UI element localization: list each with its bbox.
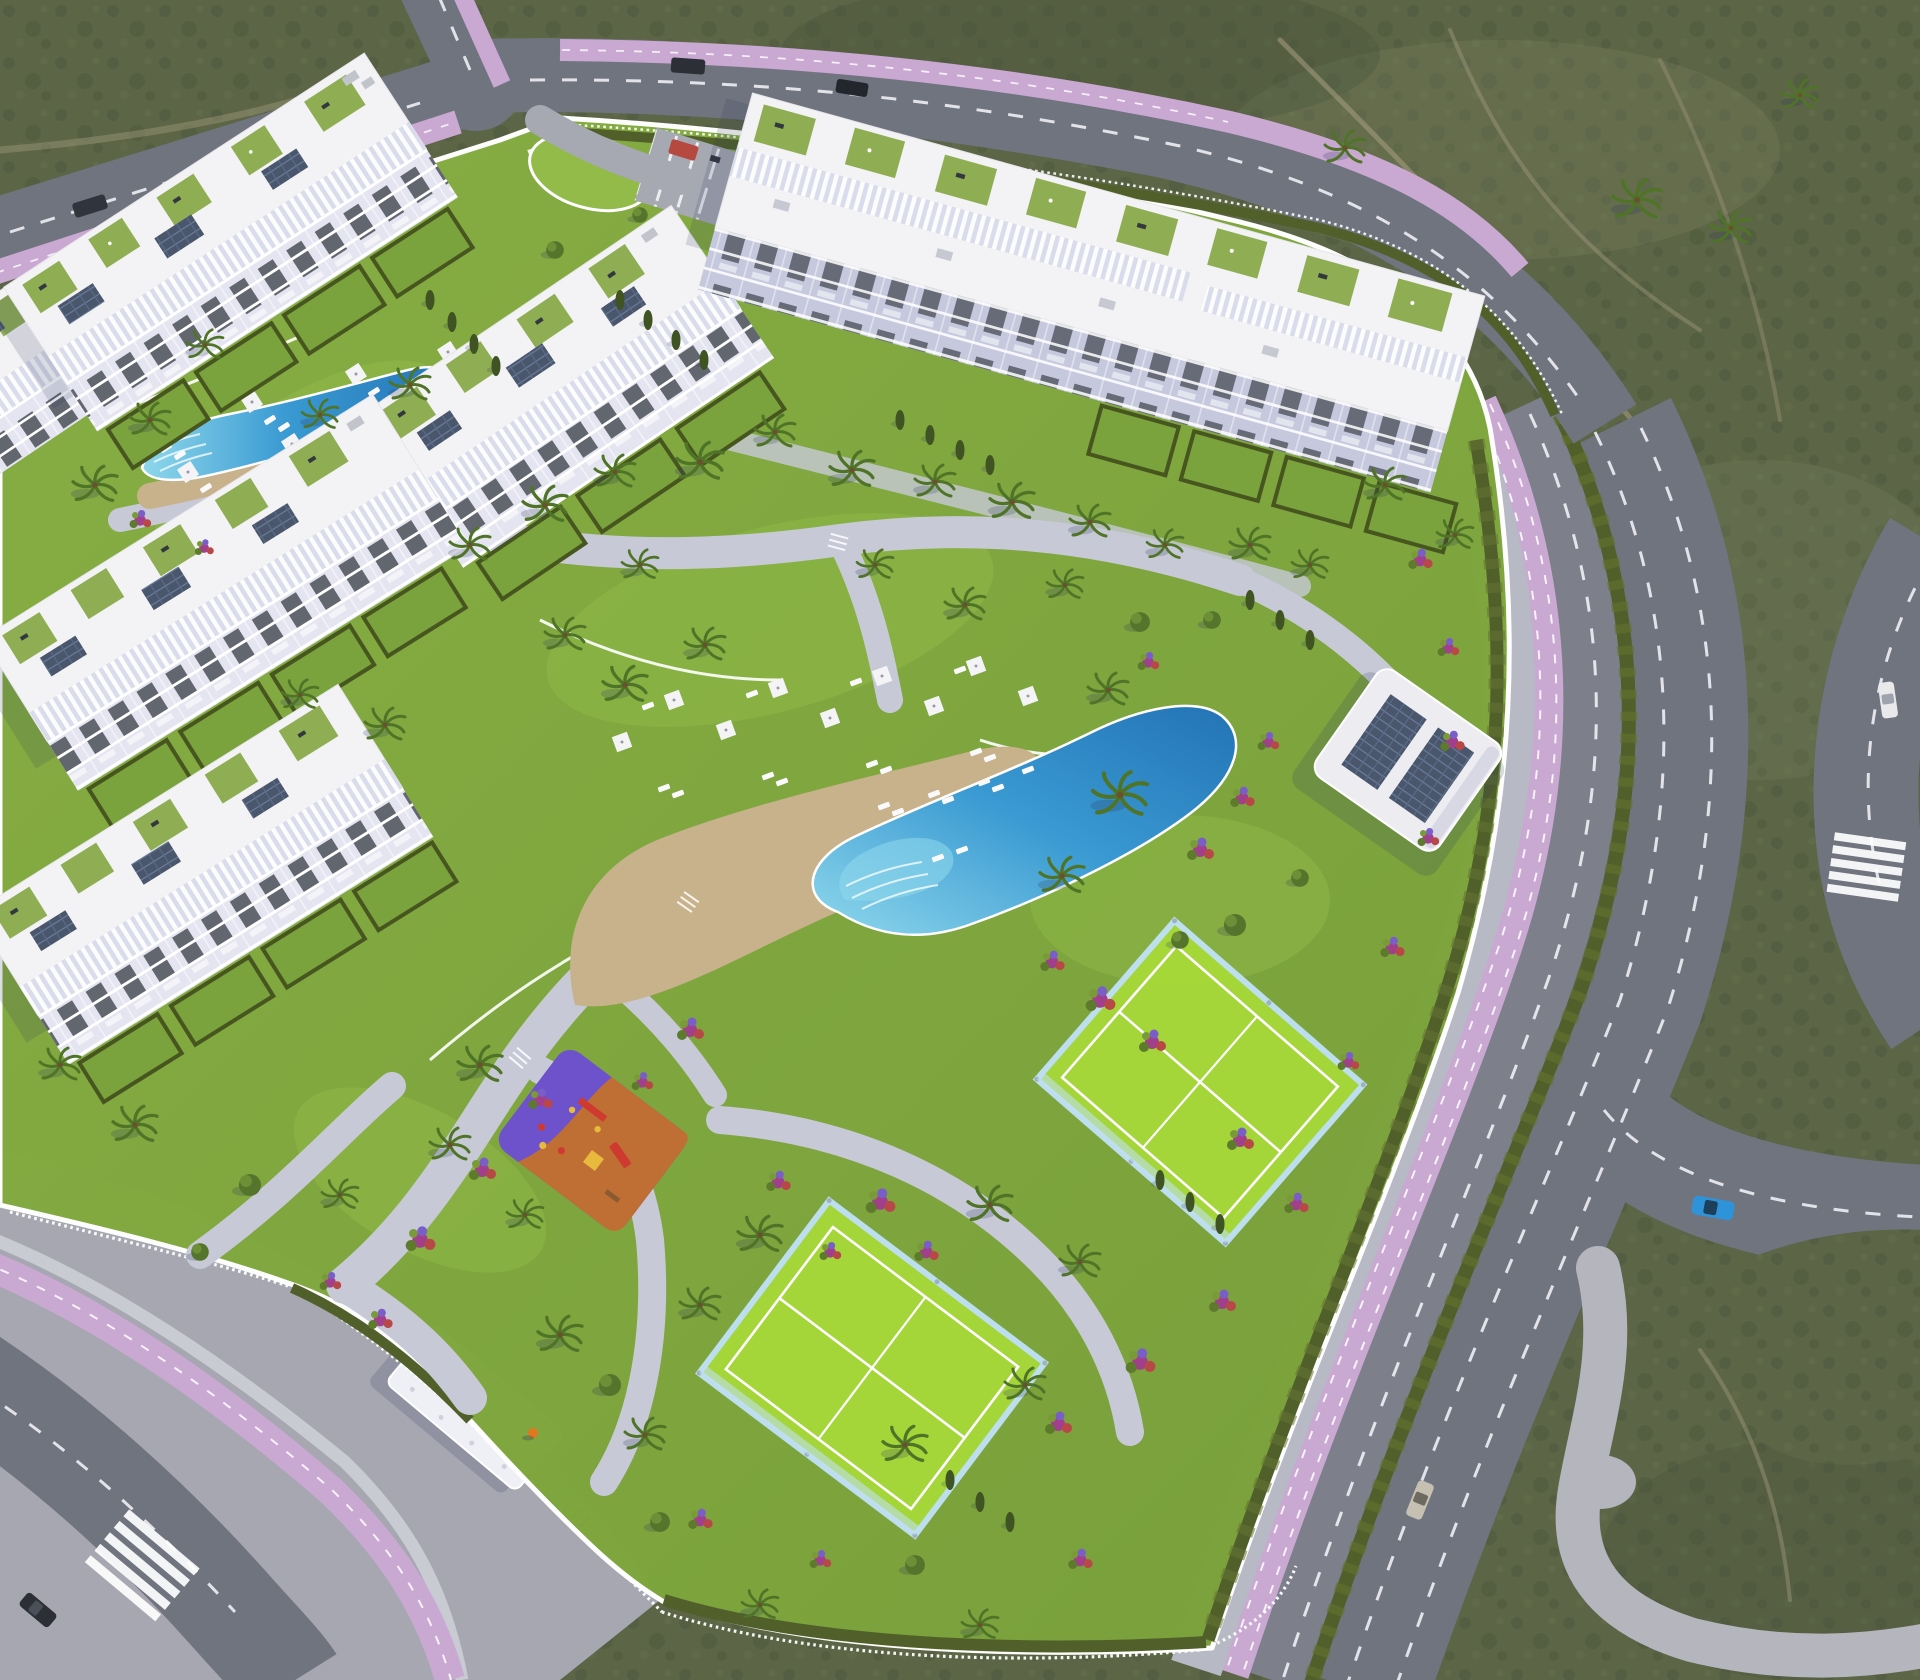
aerial-render	[0, 0, 1920, 1680]
scrub-island	[1725, 1229, 1920, 1464]
edge-road	[1866, 545, 1920, 1020]
stone-path-plaza	[1564, 1455, 1636, 1509]
render-stage	[0, 0, 1920, 1680]
